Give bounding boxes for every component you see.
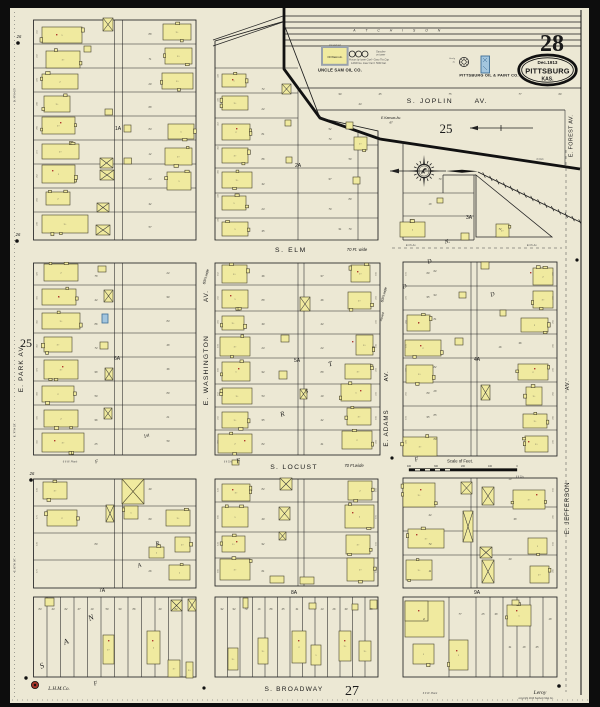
svg-text:12000 Ga. lower Can't. 5000 Ga: 12000 Ga. lower Can't. 5000 Gal.	[351, 62, 387, 65]
svg-text:6 ft W. Plank: 6 ft W. Plank	[63, 460, 78, 464]
svg-text:25: 25	[481, 612, 485, 616]
svg-text:25: 25	[94, 442, 98, 446]
svg-text:2A: 2A	[295, 163, 302, 169]
svg-text:L.H.M.Co.: L.H.M.Co.	[47, 687, 69, 692]
svg-text:E. PARK AV.: E. PARK AV.	[18, 344, 25, 393]
svg-text:6 ft Cin.: 6 ft Cin.	[224, 461, 233, 464]
svg-text:24: 24	[166, 271, 170, 275]
svg-text:E. 8TH ST.: E. 8TH ST.	[13, 558, 17, 573]
svg-text:6 ft W. Plank: 6 ft W. Plank	[423, 691, 438, 695]
svg-text:26: 26	[15, 232, 21, 237]
svg-text:7A: 7A	[99, 588, 106, 594]
svg-text:70 Ft.wide: 70 Ft.wide	[344, 463, 364, 468]
svg-text:Dec.1913: Dec.1913	[538, 60, 558, 65]
svg-text:100: 100	[488, 465, 493, 468]
svg-text:26: 26	[148, 569, 152, 573]
svg-text:25: 25	[369, 607, 373, 611]
svg-text:E. WASHINGTON: E. WASHINGTON	[203, 335, 210, 405]
svg-text:&c: &c	[453, 62, 455, 64]
svg-text:E. 7TH ST.: E. 7TH ST.	[13, 423, 17, 438]
svg-text:E. JEFFERSON: E. JEFFERSON	[565, 482, 571, 535]
svg-text:copyright 1913 Sanborn Map Co.: copyright 1913 Sanborn Map Co.	[518, 697, 553, 700]
svg-text:9A: 9A	[474, 590, 481, 596]
svg-text:Iron clad roof: Iron clad roof	[329, 45, 341, 47]
svg-text:24: 24	[148, 177, 152, 181]
svg-text:AV.: AV.	[384, 371, 390, 382]
svg-text:UNCLE SAM OIL CO.: UNCLE SAM OIL CO.	[318, 68, 362, 73]
svg-text:24: 24	[261, 107, 265, 111]
svg-text:25: 25	[20, 336, 32, 350]
svg-text:E.Ch.Av.: E.Ch.Av.	[527, 243, 538, 247]
svg-text:on tower: on tower	[376, 54, 385, 57]
svg-text:200: 200	[461, 465, 466, 468]
svg-text:Oil Ware Ho.: Oil Ware Ho.	[327, 55, 343, 59]
svg-text:23: 23	[261, 207, 265, 211]
svg-text:26: 26	[16, 34, 22, 39]
svg-text:S. LOCUST: S. LOCUST	[270, 464, 318, 471]
svg-text:Leroy: Leroy	[533, 690, 547, 696]
svg-text:PITTSBURG OIL & PAINT CO.: PITTSBURG OIL & PAINT CO.	[459, 73, 518, 78]
svg-text:E. ADAMS: E. ADAMS	[383, 409, 390, 446]
svg-text:E.Ch.Av.: E.Ch.Av.	[406, 243, 417, 247]
svg-text:25: 25	[440, 121, 453, 136]
svg-text:KAS.: KAS.	[542, 77, 555, 83]
svg-text:3A: 3A	[466, 215, 473, 221]
svg-text:26: 26	[332, 607, 336, 611]
svg-text:6A: 6A	[114, 356, 121, 362]
svg-text:67: 67	[389, 121, 393, 125]
svg-text:21: 21	[166, 415, 170, 419]
svg-text:S. ELM: S. ELM	[275, 247, 307, 254]
svg-text:AV.: AV.	[475, 98, 488, 105]
svg-text:28: 28	[433, 389, 437, 393]
svg-text:23: 23	[261, 346, 265, 350]
svg-text:26: 26	[29, 471, 35, 476]
svg-text:70 Ft. wide: 70 Ft. wide	[347, 247, 368, 252]
svg-text:E. 4TH ST.: E. 4TH ST.	[13, 88, 17, 103]
svg-text:8A: 8A	[291, 590, 298, 596]
svg-text:E. FOREST AV.: E. FOREST AV.	[569, 115, 575, 158]
svg-text:24: 24	[320, 346, 324, 350]
svg-text:28: 28	[540, 31, 564, 57]
svg-text:5A: 5A	[294, 358, 301, 364]
svg-text:4A: 4A	[474, 357, 481, 363]
svg-text:400: 400	[407, 465, 412, 468]
svg-text:S. JOPLIN: S. JOPLIN	[407, 98, 454, 105]
svg-text:A T C H I S O N: A T C H I S O N	[352, 29, 445, 33]
svg-text:27: 27	[345, 684, 359, 699]
svg-text:AV.: AV.	[203, 290, 210, 302]
svg-text:Scale of Feet.: Scale of Feet.	[447, 459, 473, 464]
svg-text:E.Kansas Av.: E.Kansas Av.	[381, 116, 401, 120]
svg-text:6 ft Cin.: 6 ft Cin.	[516, 476, 525, 479]
svg-text:PITTSBURG: PITTSBURG	[525, 67, 570, 76]
svg-text:6 Club: 6 Club	[537, 158, 545, 161]
svg-text:29: 29	[148, 82, 152, 86]
svg-text:300: 300	[434, 465, 439, 468]
svg-text:1A: 1A	[115, 126, 122, 132]
svg-text:S. BROADWAY: S. BROADWAY	[265, 686, 324, 693]
svg-text:Heat'g: Heat'g	[449, 57, 456, 60]
